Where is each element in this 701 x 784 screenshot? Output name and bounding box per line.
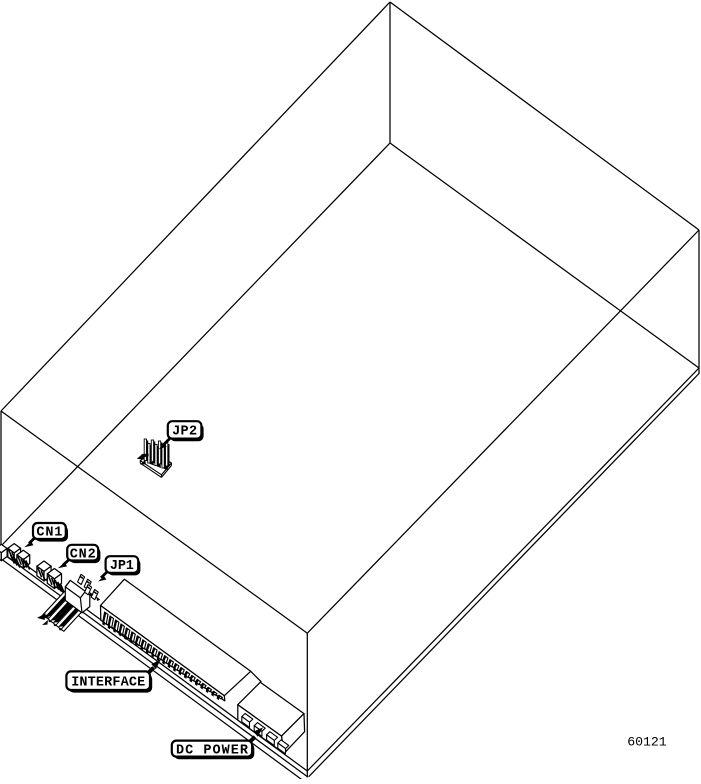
svg-text:INTERFACE: INTERFACE (71, 675, 145, 690)
svg-text:DC POWER: DC POWER (176, 743, 249, 758)
svg-text:60121: 60121 (627, 735, 667, 750)
svg-text:JP2: JP2 (172, 425, 197, 440)
svg-text:CN2: CN2 (70, 547, 96, 562)
svg-text:CN1: CN1 (36, 526, 62, 541)
svg-text:JP1: JP1 (110, 559, 134, 574)
